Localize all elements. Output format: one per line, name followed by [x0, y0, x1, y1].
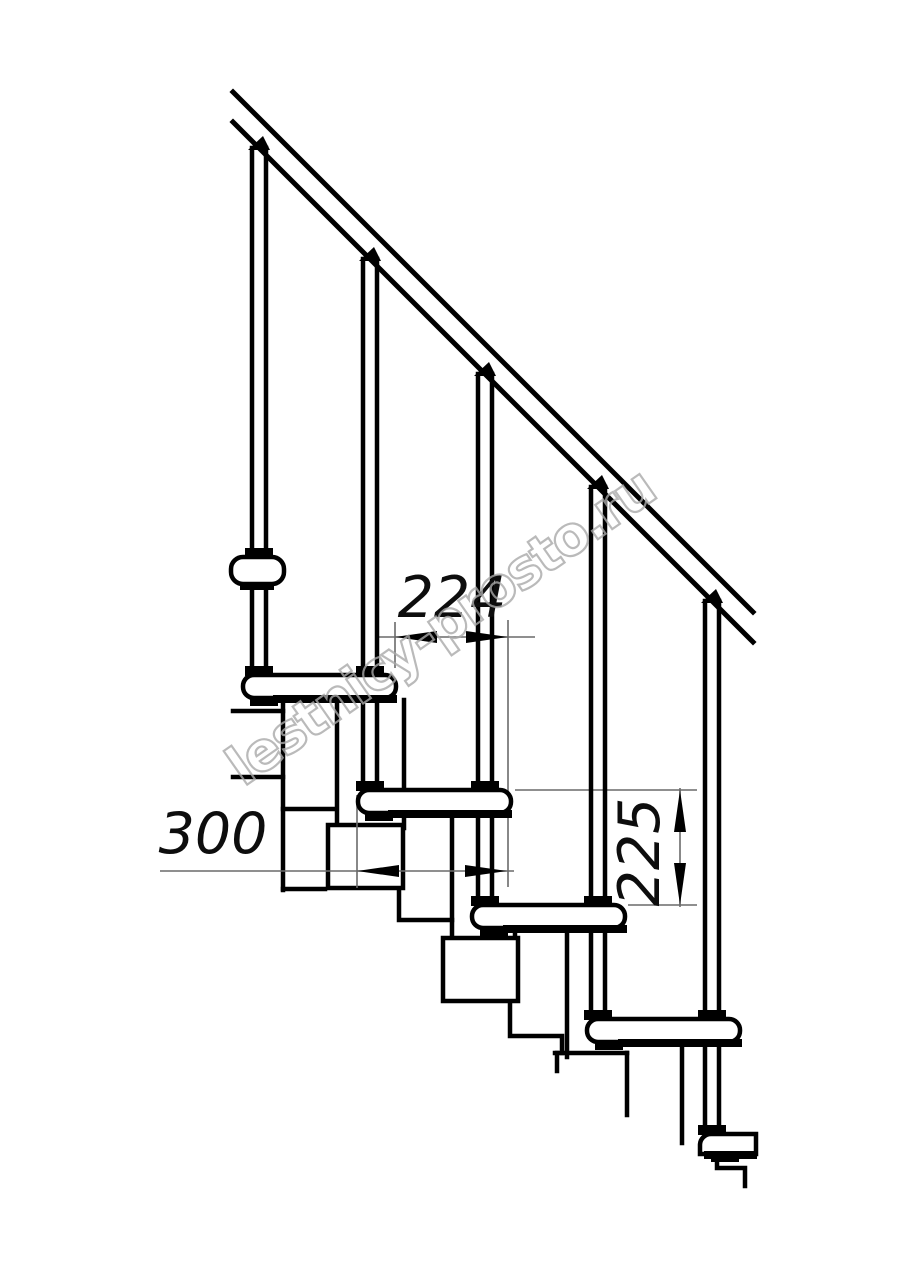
dimension-225: 225 — [607, 790, 686, 906]
stringer-modules — [233, 700, 745, 1186]
staircase-drawing-canvas: 224 300 225 lestnicy-prosto.ru — [0, 0, 914, 1280]
bracket-tab — [240, 583, 274, 590]
module-box-2 — [443, 938, 518, 1001]
watermark-text: lestnicy-prosto.ru — [215, 456, 666, 798]
module-box-1 — [328, 825, 403, 888]
arrow-225-up — [674, 790, 686, 832]
baluster-1 — [252, 148, 266, 673]
arrow-300-right — [465, 865, 507, 877]
tread-2-shadow — [388, 810, 512, 818]
collar-tread-4 — [698, 1010, 726, 1020]
tread-3-shadow — [503, 925, 627, 933]
tread-5-mount — [711, 1154, 739, 1162]
foot-baluster-3 — [471, 896, 499, 906]
tread-3-mount — [480, 928, 508, 936]
tread-4 — [587, 1019, 740, 1042]
tread-2-mount — [365, 813, 393, 821]
baluster-5 — [705, 601, 719, 1132]
foot-baluster-2 — [356, 781, 384, 791]
baluster-4 — [591, 487, 605, 1017]
dim-label-300: 300 — [159, 801, 268, 867]
dim-label-225: 225 — [607, 798, 673, 907]
foot-baluster-4 — [584, 1010, 612, 1020]
tread-4-mount — [595, 1042, 623, 1050]
drawing-page: 224 300 225 lestnicy-prosto.ru — [0, 0, 914, 1280]
arrow-225-down — [674, 863, 686, 905]
foot-baluster-5 — [698, 1125, 726, 1135]
foot-baluster-1 — [245, 666, 273, 676]
collar-tread-2 — [471, 781, 499, 791]
landing-bracket — [231, 557, 284, 584]
collar-bracket — [245, 548, 273, 558]
tread-2 — [358, 790, 511, 813]
watermark: lestnicy-prosto.ru — [215, 456, 666, 798]
tread-3 — [472, 905, 625, 928]
tread-4-shadow — [618, 1039, 742, 1047]
